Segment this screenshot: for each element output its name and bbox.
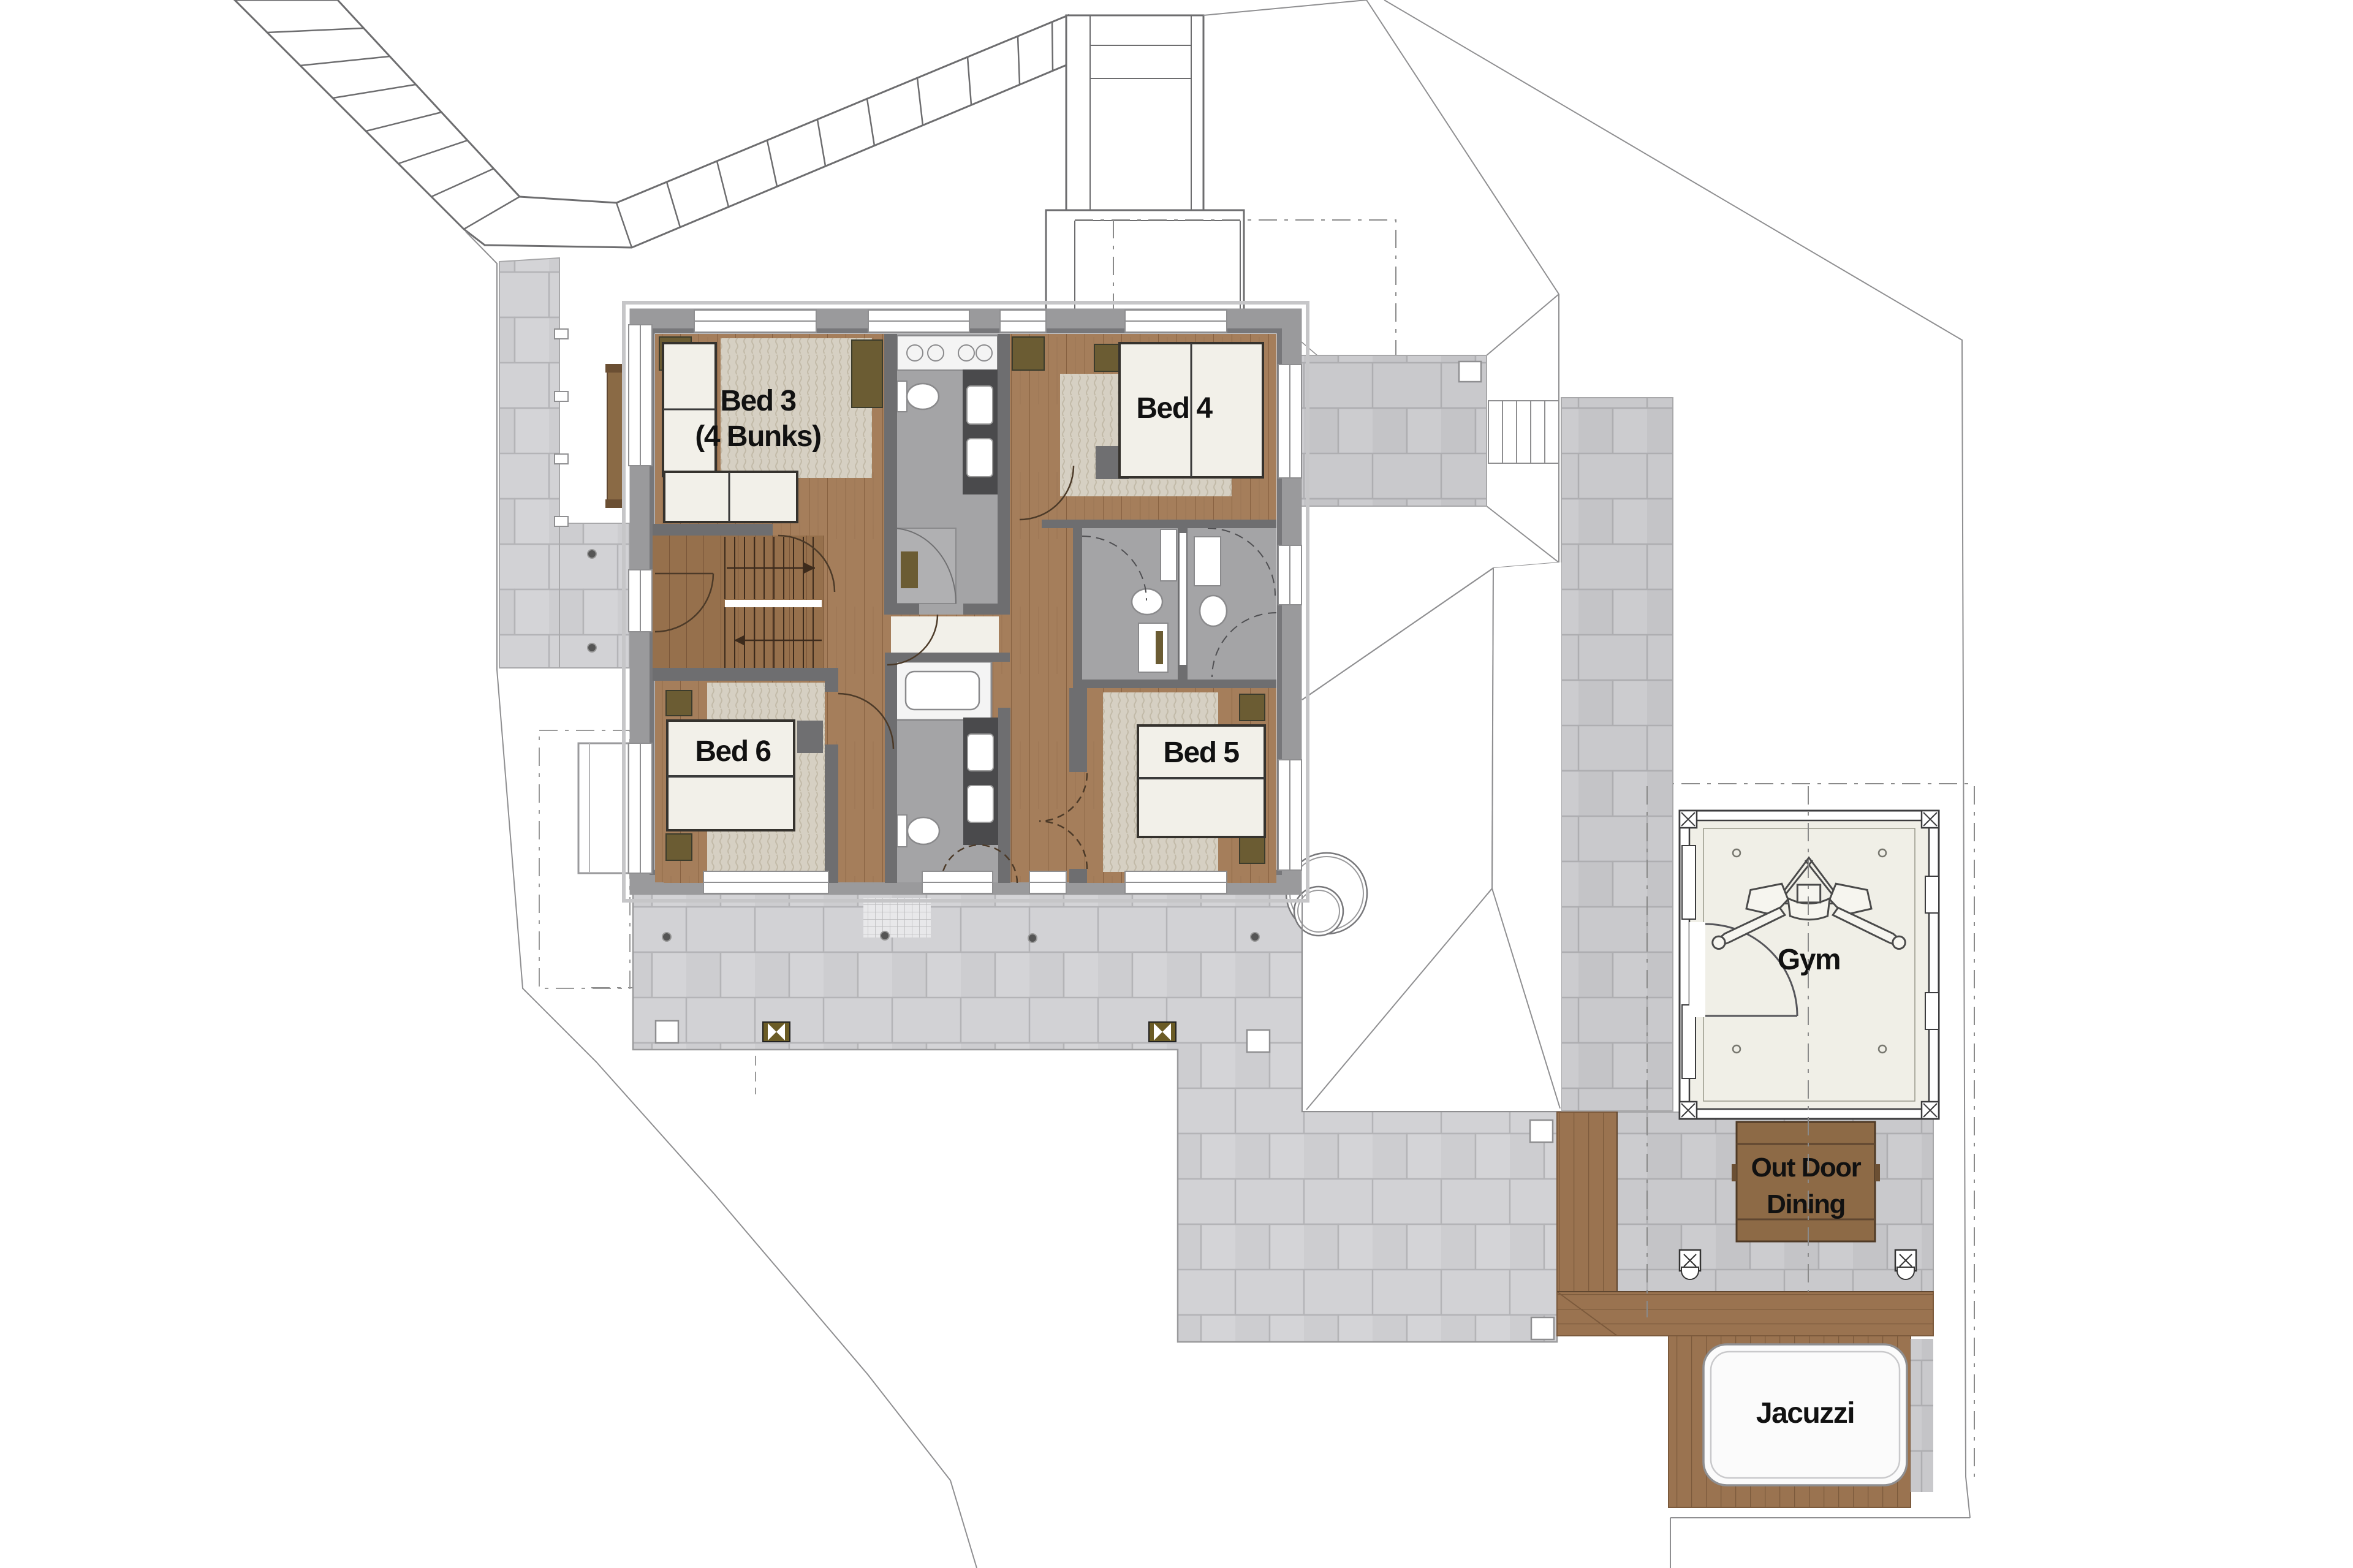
svg-text:Jacuzzi: Jacuzzi: [1756, 1397, 1854, 1430]
svg-text:Bed 6: Bed 6: [695, 735, 770, 768]
svg-text:Bed 3: Bed 3: [720, 385, 795, 417]
svg-text:Dining: Dining: [1767, 1189, 1845, 1219]
svg-text:Bed 5: Bed 5: [1163, 737, 1239, 769]
svg-text:(4 Bunks): (4 Bunks): [695, 420, 820, 453]
svg-text:Bed 4: Bed 4: [1136, 392, 1213, 425]
svg-text:Out Door: Out Door: [1751, 1153, 1862, 1183]
